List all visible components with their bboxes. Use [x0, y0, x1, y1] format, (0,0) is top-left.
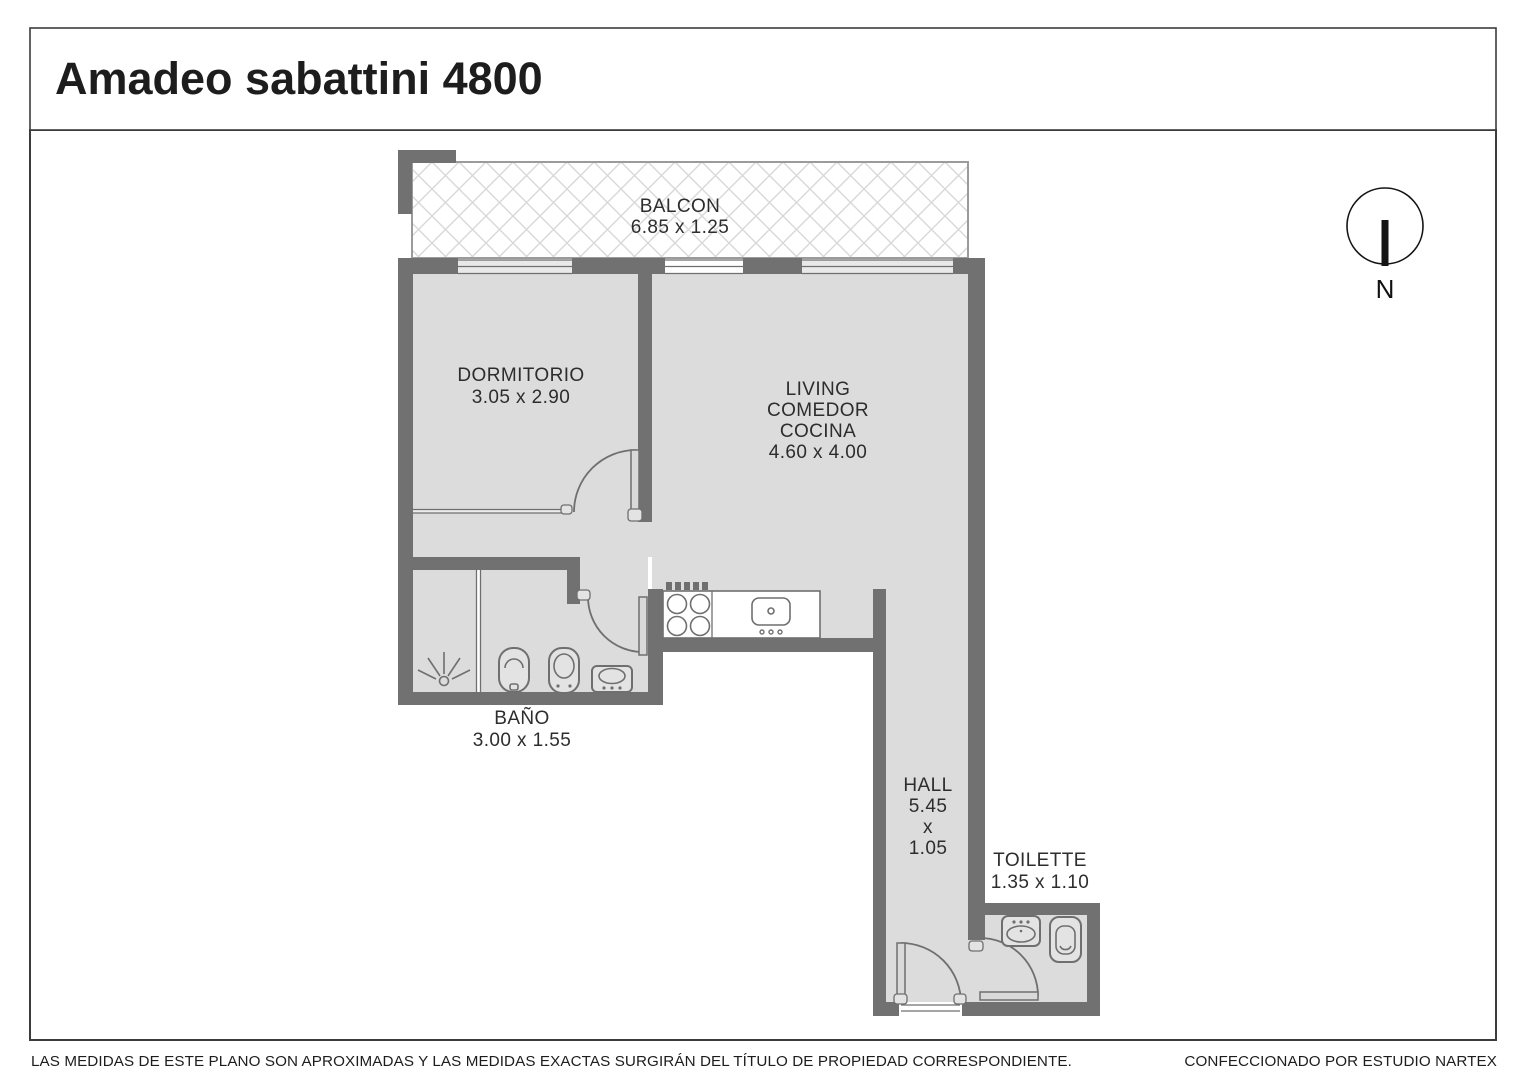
- wall-segment: [572, 258, 665, 274]
- wall-segment: [968, 258, 985, 940]
- room-dims: 1.05: [909, 838, 948, 859]
- room-name: COMEDOR: [767, 400, 869, 421]
- bath-sink-icon: [592, 666, 632, 692]
- room-dims: 6.85 x 1.25: [631, 217, 729, 238]
- window-balcony-door: [665, 260, 743, 274]
- window-living: [802, 260, 953, 274]
- wall-segment: [985, 903, 1100, 915]
- wall-segment: [873, 589, 886, 652]
- room-name: DORMITORIO: [457, 365, 584, 386]
- shower-partition: [477, 570, 481, 692]
- toilette-sink-icon: [1002, 916, 1040, 946]
- room-name: COCINA: [780, 421, 856, 442]
- room-label-toilette: TOILETTE 1.35 x 1.10: [991, 850, 1089, 893]
- room-dims: 3.05 x 2.90: [472, 387, 570, 408]
- room-dims: 4.60 x 4.00: [769, 442, 867, 463]
- footer-credit: CONFECCIONADO POR ESTUDIO NARTEX: [1184, 1053, 1497, 1070]
- wall-segment: [398, 557, 580, 570]
- wall-segment: [398, 692, 663, 705]
- wall-segment: [398, 258, 413, 705]
- room-label-dormitorio: DORMITORIO 3.05 x 2.90: [457, 365, 584, 408]
- kitchen-counter: [663, 591, 820, 638]
- window-dormitorio: [458, 260, 572, 274]
- toilet-icon: [549, 648, 579, 693]
- room-dims: 1.35 x 1.10: [991, 872, 1089, 893]
- toilette-toilet-icon: [1050, 917, 1081, 962]
- wall-segment: [962, 1002, 1100, 1016]
- room-name: BAÑO: [494, 707, 549, 729]
- wall-segment: [1087, 903, 1100, 1016]
- wall-segment: [398, 150, 456, 163]
- wall-segment: [638, 274, 652, 522]
- room-name: TOILETTE: [993, 850, 1087, 871]
- room-dims: 3.00 x 1.55: [473, 730, 571, 751]
- north-label: N: [1376, 274, 1395, 304]
- footer-disclaimer: LAS MEDIDAS DE ESTE PLANO SON APROXIMADA…: [31, 1053, 1072, 1070]
- wall-segment: [743, 258, 802, 274]
- floor-plan-page: Amadeo sabattini 4800: [0, 0, 1528, 1080]
- windows: [458, 260, 953, 274]
- bidet-icon: [499, 648, 529, 692]
- room-label-balcon: BALCON 6.85 x 1.25: [631, 196, 729, 238]
- floor-vestibule: [413, 513, 652, 557]
- room-name: LIVING: [786, 379, 851, 400]
- room-name: HALL: [903, 775, 952, 796]
- room-dims: 5.45: [909, 796, 948, 817]
- wall-segment: [648, 638, 886, 652]
- room-dims: x: [923, 817, 933, 838]
- room-name: BALCON: [640, 196, 721, 217]
- page-title: Amadeo sabattini 4800: [55, 53, 543, 104]
- wall-segment: [873, 652, 886, 1016]
- floor-plan: Amadeo sabattini 4800: [0, 0, 1528, 1080]
